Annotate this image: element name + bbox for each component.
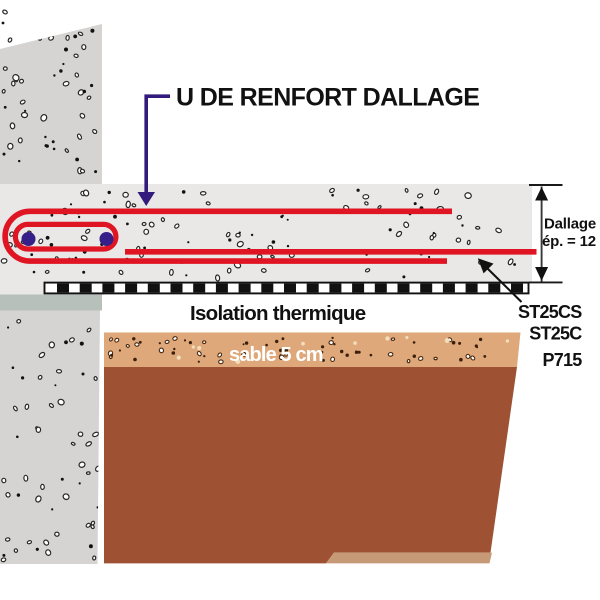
svg-text:Isolation thermique: Isolation thermique [190,302,366,325]
svg-text:P715: P715 [542,350,582,370]
svg-text:sable 5 cm: sable 5 cm [229,344,323,366]
svg-text:Dallage: Dallage [544,216,596,233]
svg-text:ép. = 12: ép. = 12 [542,233,596,250]
svg-text:U DE RENFORT DALLAGE: U DE RENFORT DALLAGE [176,84,479,112]
svg-text:ST25C: ST25C [529,324,582,344]
svg-text:ST25CS: ST25CS [518,302,582,322]
